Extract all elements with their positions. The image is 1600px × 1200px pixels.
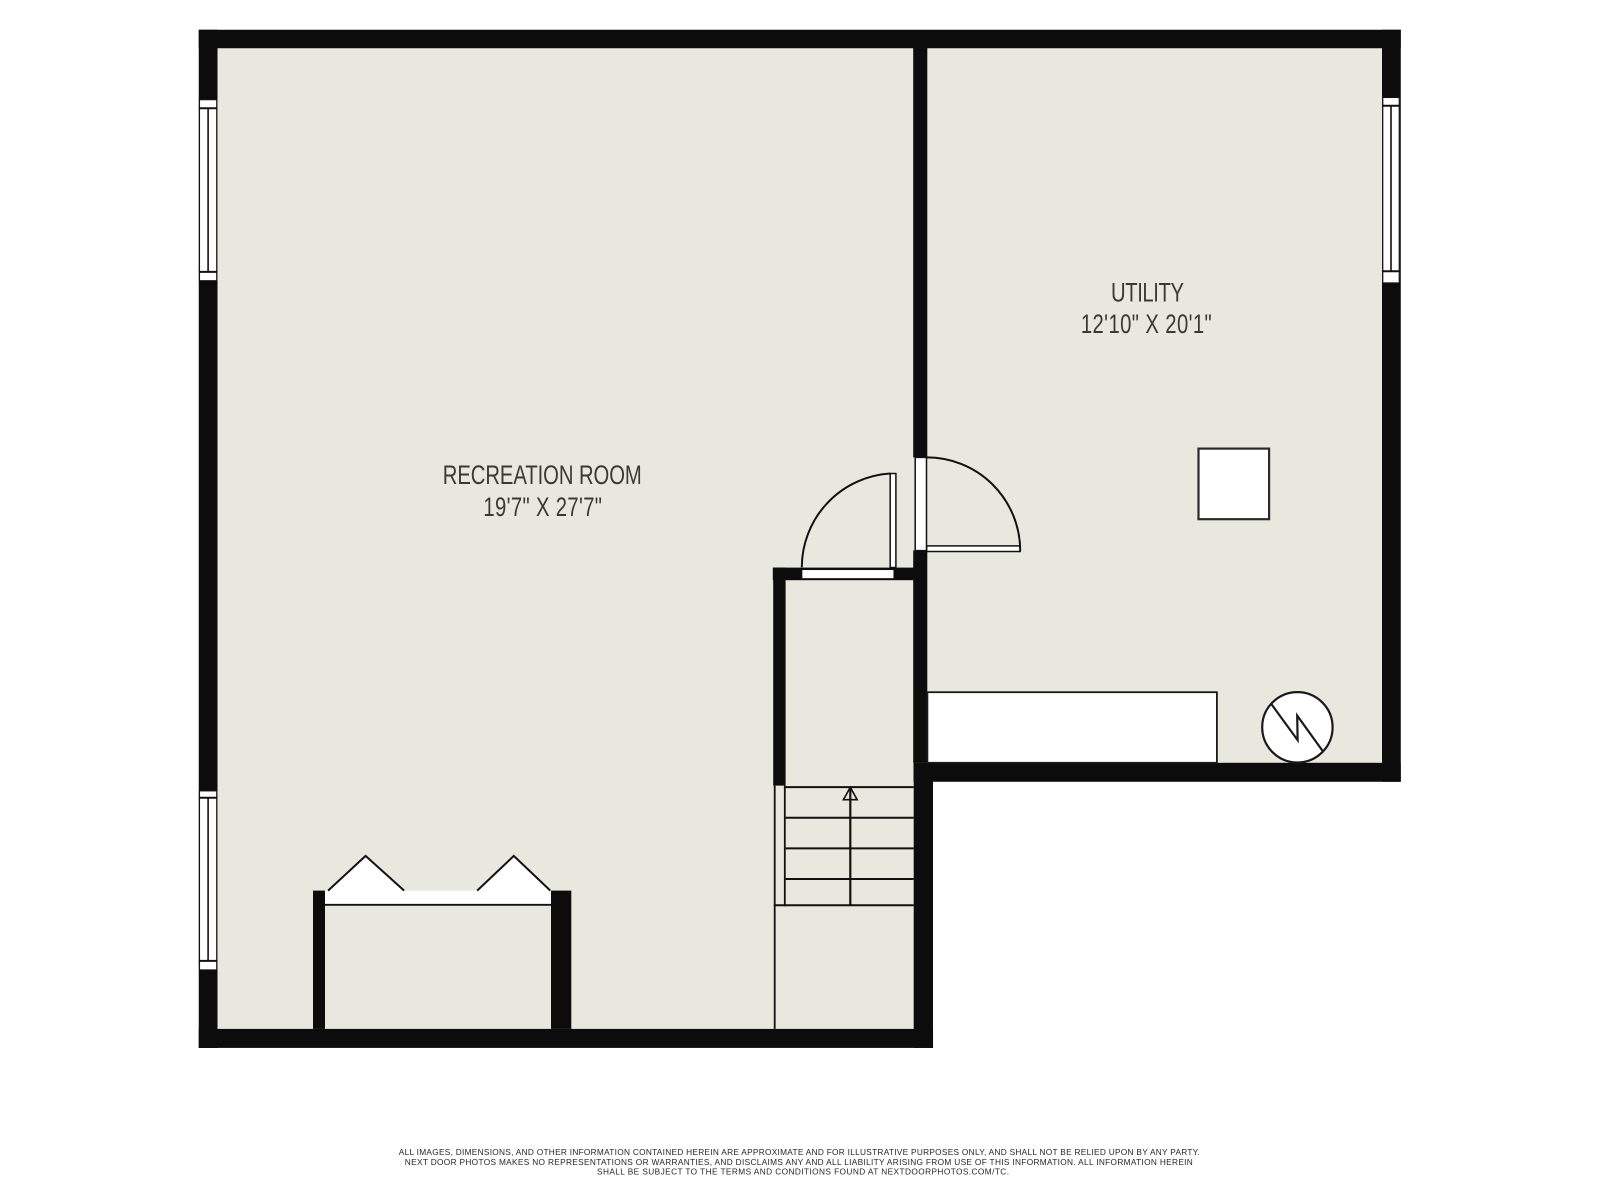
svg-text:RECREATION ROOM: RECREATION ROOM bbox=[443, 460, 642, 491]
svg-text:ALL IMAGES, DIMENSIONS, AND OT: ALL IMAGES, DIMENSIONS, AND OTHER INFORM… bbox=[399, 1147, 1200, 1157]
svg-text:SHALL BE SUBJECT TO THE TERMS: SHALL BE SUBJECT TO THE TERMS AND CONDIT… bbox=[597, 1167, 1009, 1177]
svg-text:UTILITY: UTILITY bbox=[1111, 278, 1184, 309]
svg-text:12'10" X 20'1": 12'10" X 20'1" bbox=[1081, 309, 1212, 340]
svg-text:NEXT DOOR PHOTOS MAKES NO REPR: NEXT DOOR PHOTOS MAKES NO REPRESENTATION… bbox=[405, 1157, 1193, 1167]
svg-text:19'7" X 27'7": 19'7" X 27'7" bbox=[483, 492, 602, 523]
